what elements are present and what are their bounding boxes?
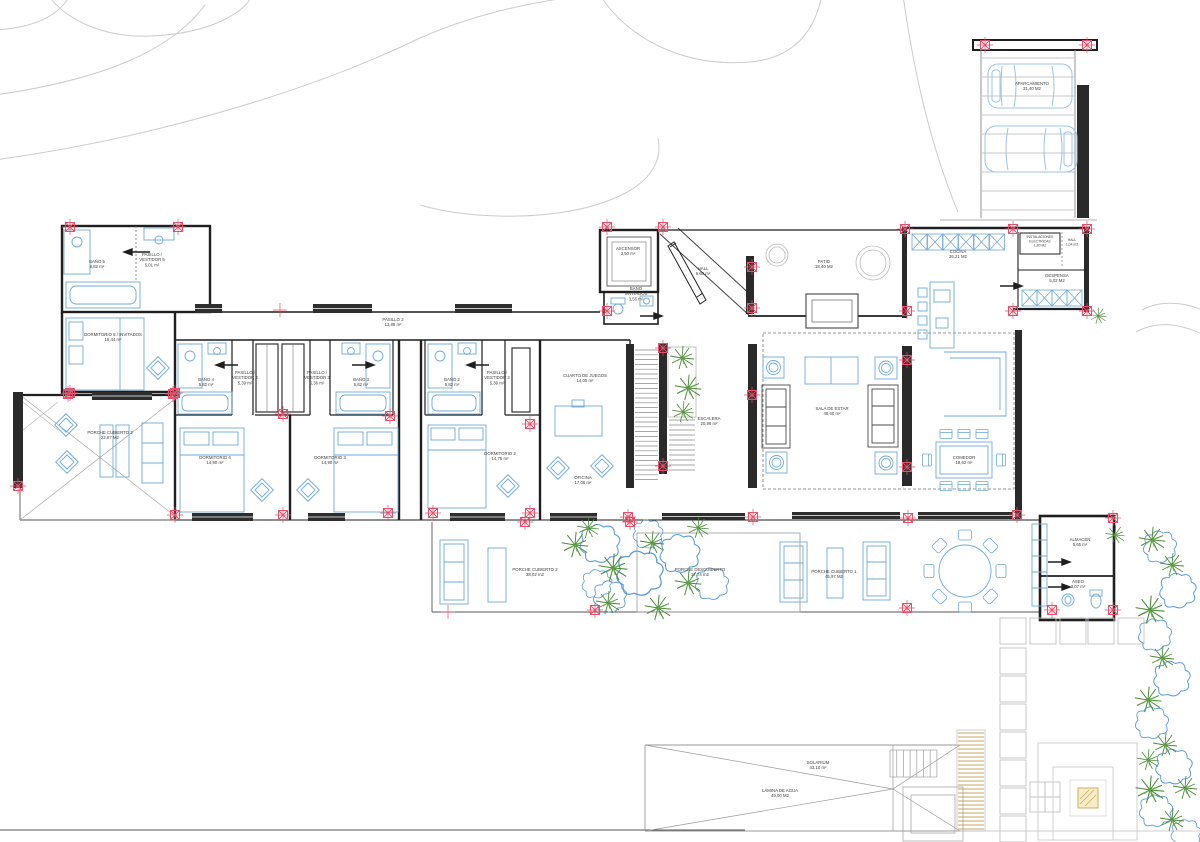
room-label: 3,50 m² bbox=[621, 251, 636, 256]
pool bbox=[645, 745, 960, 831]
garage bbox=[940, 40, 1097, 220]
room-label: 45,97 M2 bbox=[825, 574, 844, 579]
stepping-stone bbox=[1000, 648, 1026, 674]
grid-marker-icon bbox=[167, 507, 183, 523]
grid-marker-icon bbox=[275, 507, 291, 523]
floor-plan-drawing: BAÑO 55,82 m²PASILLO /VESTIDOR 55,01 m²D… bbox=[0, 0, 1200, 842]
plant-icon bbox=[675, 375, 701, 400]
door-arrows bbox=[124, 249, 1070, 590]
garden-hardscape bbox=[1000, 618, 1144, 842]
outdoor-chair bbox=[982, 588, 998, 604]
plant-icon bbox=[1139, 527, 1165, 552]
grid-marker-icon bbox=[522, 416, 538, 432]
plant-icon bbox=[1090, 308, 1107, 324]
stepping-stone bbox=[1000, 760, 1026, 786]
stepping-stone bbox=[1000, 704, 1026, 730]
outdoor-chair bbox=[982, 537, 998, 553]
grid-marker-icon bbox=[275, 406, 291, 422]
plant-icon bbox=[645, 595, 671, 620]
grid-marker-icon bbox=[899, 459, 915, 475]
stepping-stone bbox=[1000, 788, 1026, 814]
outdoor-chair bbox=[931, 537, 947, 553]
room-label: 49,00 M2 bbox=[771, 793, 790, 798]
grid-marker-icon bbox=[622, 514, 638, 530]
car-icon bbox=[985, 126, 1077, 172]
room-labels: BAÑO 55,82 m²PASILLO /VESTIDOR 55,01 m²D… bbox=[84, 81, 1090, 798]
grid-marker-icon bbox=[655, 340, 671, 356]
grid-marker-icon bbox=[1105, 510, 1121, 526]
sheet-border bbox=[0, 830, 1200, 831]
grid-marker-icon bbox=[1105, 602, 1121, 618]
fixtures bbox=[64, 228, 1102, 608]
outdoor-chair bbox=[959, 530, 972, 540]
walls bbox=[13, 226, 1114, 620]
room-label: 5,65 m² bbox=[1073, 542, 1088, 547]
pavilion bbox=[890, 750, 963, 841]
room-label: 3,07 m² bbox=[1071, 584, 1086, 589]
room-label: 5,39 m² bbox=[238, 380, 253, 385]
stepping-stone bbox=[1088, 618, 1114, 644]
room-label: 5,02 M2 bbox=[1049, 278, 1065, 283]
grid-marker-icon bbox=[10, 478, 26, 494]
room-label: 3,55 m² bbox=[629, 296, 644, 301]
outdoor-chair bbox=[924, 565, 934, 578]
grid-marker-icon bbox=[744, 387, 760, 403]
plant-icon bbox=[562, 532, 588, 557]
room-label: 16,44 m² bbox=[105, 337, 123, 342]
room-label: 17,74 m2 bbox=[691, 572, 710, 577]
plant-icon bbox=[1136, 596, 1165, 624]
grid-marker-icon bbox=[587, 602, 603, 618]
plant-icon bbox=[670, 346, 694, 369]
outdoor-chair bbox=[959, 602, 972, 612]
grid-marker-icon bbox=[1005, 303, 1021, 319]
stepping-stone bbox=[1000, 816, 1026, 842]
stairs bbox=[626, 344, 757, 488]
bush-icon bbox=[1138, 619, 1171, 651]
room-label: 22,87 M2 bbox=[101, 435, 120, 440]
grid-marker-icon bbox=[1009, 507, 1025, 523]
room-label: 14,90 m² bbox=[322, 460, 340, 465]
stepping-stone bbox=[1060, 618, 1086, 644]
grid-cross-icon bbox=[273, 303, 287, 317]
room-label: 48,60 m² bbox=[824, 411, 842, 416]
grid-marker-icon bbox=[517, 514, 533, 530]
room-label: 38,02 m2 bbox=[526, 572, 545, 577]
plan-sheet: BAÑO 55,82 m²PASILLO /VESTIDOR 55,01 m²D… bbox=[0, 0, 1200, 842]
plant-icon bbox=[1136, 776, 1165, 804]
room-label: 13,88 m² bbox=[385, 322, 403, 327]
room-label: 31,40 M2 bbox=[1023, 86, 1042, 91]
windows bbox=[92, 304, 1012, 521]
room-label: 18,40 M2 bbox=[815, 264, 834, 269]
stepping-stone bbox=[1000, 732, 1026, 758]
room-label: 18,62 m² bbox=[956, 460, 974, 465]
room-label: 1,80 M2 bbox=[1034, 244, 1046, 248]
plant-icon bbox=[672, 401, 694, 422]
grid-marker-icon bbox=[899, 600, 915, 616]
bush-icon bbox=[617, 551, 663, 595]
room-label: 43,10 m² bbox=[810, 765, 828, 770]
plant-icon bbox=[1173, 776, 1197, 799]
stepping-stone bbox=[1000, 618, 1026, 644]
grid-marker-icon bbox=[899, 352, 915, 368]
grid-marker-icon bbox=[170, 219, 186, 235]
room-label: 14,90 m² bbox=[207, 460, 225, 465]
room-label: 14,75 m² bbox=[492, 456, 510, 461]
plant-icon bbox=[1137, 749, 1159, 770]
grid-marker-icon bbox=[745, 509, 761, 525]
room-label: 6,60 m² bbox=[696, 271, 711, 276]
plant-icon bbox=[1160, 553, 1184, 576]
grid-marker-icon bbox=[425, 505, 441, 521]
grid-marker-icon bbox=[599, 219, 615, 235]
grid-marker-icon bbox=[382, 408, 398, 424]
room-label: 5,82 m² bbox=[445, 382, 460, 387]
bush-icon bbox=[1156, 749, 1192, 784]
grid-marker-icon bbox=[1044, 602, 1060, 618]
grid-marker-icon bbox=[1005, 221, 1021, 237]
outdoor-chair bbox=[996, 565, 1006, 578]
room-label: 1,04 m2 bbox=[1066, 242, 1078, 246]
room-label: 5,82 m² bbox=[90, 264, 105, 269]
bush-icon bbox=[582, 570, 612, 598]
stepping-stone bbox=[1030, 618, 1056, 644]
wood-deck bbox=[957, 730, 985, 831]
stepping-stone bbox=[1118, 618, 1144, 644]
stepping-stone bbox=[1000, 676, 1026, 702]
grid-marker-icon bbox=[380, 505, 396, 521]
plants bbox=[562, 308, 1197, 831]
room-label: 5,39 m² bbox=[490, 380, 505, 385]
room-label: 5,82 m² bbox=[354, 382, 369, 387]
room-label: 14,05 m² bbox=[577, 378, 595, 383]
room-label: 20,99 m² bbox=[701, 421, 719, 426]
bush-icon bbox=[1160, 573, 1196, 608]
grid-marker-icon bbox=[1079, 221, 1095, 237]
plant-icon bbox=[599, 554, 628, 582]
grid-marker-icon bbox=[900, 510, 916, 526]
room-label: 26,21 M2 bbox=[949, 254, 968, 259]
grid-cross-icon bbox=[441, 605, 455, 619]
room-label: 5,82 m² bbox=[199, 382, 214, 387]
plant-icon bbox=[1153, 733, 1177, 756]
room-label: 5,36 m² bbox=[310, 380, 325, 385]
bush-icon bbox=[1135, 707, 1168, 739]
grid-marker-icon bbox=[599, 303, 615, 319]
room-label: 17,06 m² bbox=[575, 480, 593, 485]
room-label: 5,01 m² bbox=[145, 262, 160, 267]
grid-marker-icon bbox=[897, 221, 913, 237]
outdoor-chair bbox=[931, 588, 947, 604]
